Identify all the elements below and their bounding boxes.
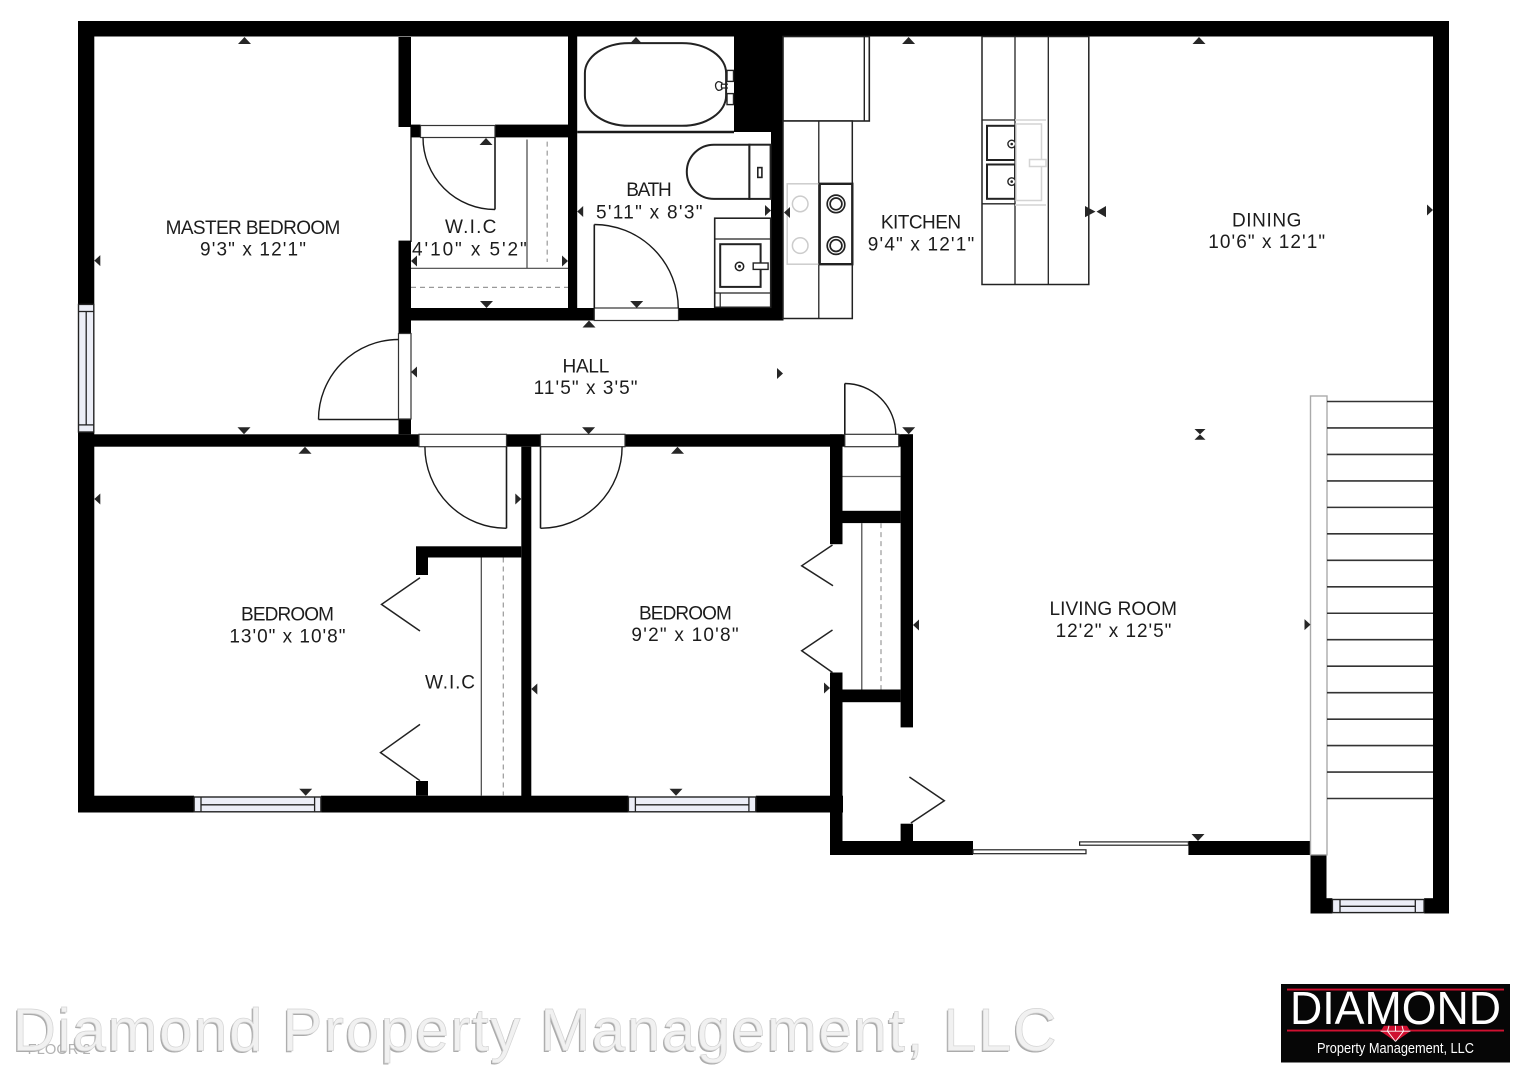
- svg-text:10'6" x 12'1": 10'6" x 12'1": [1208, 232, 1325, 253]
- svg-text:BATH: BATH: [626, 180, 672, 201]
- svg-text:5'11" x 8'3": 5'11" x 8'3": [596, 203, 703, 224]
- svg-text:BEDROOM: BEDROOM: [639, 604, 732, 625]
- svg-text:9'4" x 12'1": 9'4" x 12'1": [868, 234, 974, 255]
- svg-text:W.I.C: W.I.C: [445, 217, 496, 238]
- svg-text:MASTER BEDROOM: MASTER BEDROOM: [166, 218, 341, 239]
- svg-text:13'0" x 10'8": 13'0" x 10'8": [229, 626, 345, 647]
- svg-text:Diamond Property Management, L: Diamond Property Management, LLC: [13, 997, 1057, 1064]
- svg-text:BEDROOM: BEDROOM: [241, 605, 334, 626]
- svg-text:12'2" x 12'5": 12'2" x 12'5": [1056, 621, 1172, 642]
- svg-text:Property Management, LLC: Property Management, LLC: [1317, 1041, 1474, 1057]
- svg-text:LIVING ROOM: LIVING ROOM: [1049, 599, 1177, 620]
- svg-text:HALL: HALL: [562, 357, 609, 378]
- svg-text:9'3" x 12'1": 9'3" x 12'1": [200, 239, 306, 260]
- svg-text:KITCHEN: KITCHEN: [881, 213, 961, 234]
- svg-text:W.I.C: W.I.C: [425, 672, 475, 693]
- svg-text:DINING: DINING: [1232, 210, 1301, 231]
- svg-text:11'5" x 3'5": 11'5" x 3'5": [534, 378, 638, 399]
- svg-text:9'2" x 10'8": 9'2" x 10'8": [631, 625, 738, 646]
